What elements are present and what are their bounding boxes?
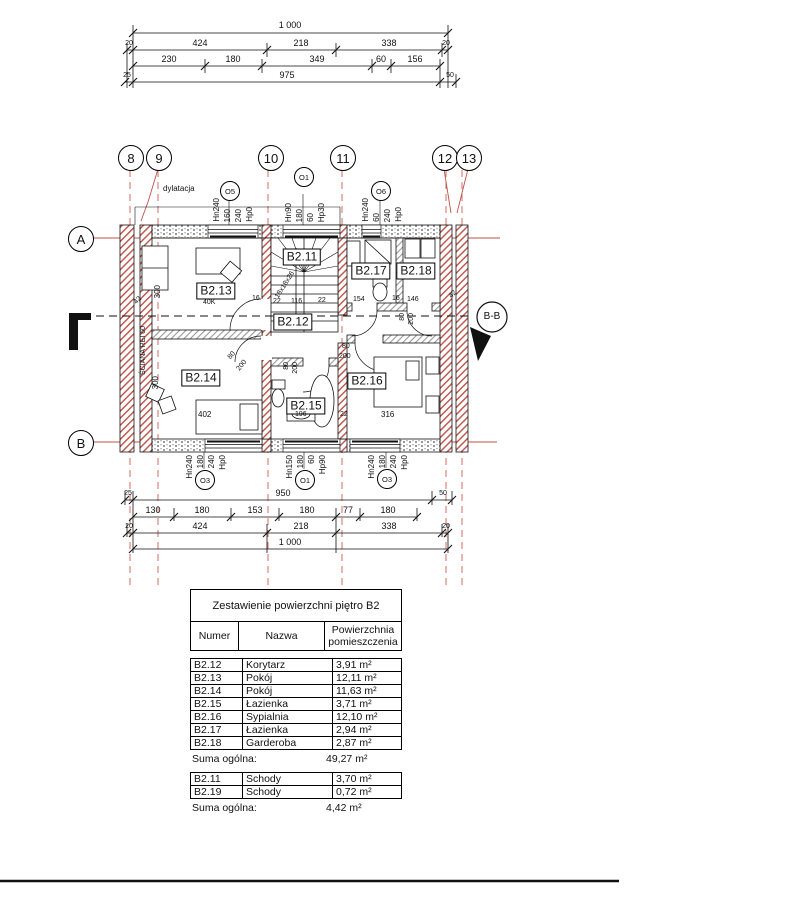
- window-label: 60: [308, 455, 316, 464]
- room-label-B2-11: B2.11: [283, 249, 321, 266]
- grid-bubble-12: 12: [432, 145, 458, 171]
- dim: 130: [145, 506, 160, 515]
- dim: 22: [340, 411, 348, 418]
- dim: 50: [446, 72, 454, 79]
- cell: 11,63 m²: [333, 685, 401, 697]
- dim: 116: [291, 298, 302, 305]
- window-label: Hn150: [286, 455, 294, 479]
- grid-bubble-9: 9: [146, 145, 172, 171]
- dim: 16: [252, 295, 260, 302]
- window-id-circle: O6: [371, 181, 391, 201]
- table-total: Suma ogólna: 49,27 m²: [190, 750, 402, 765]
- dim: 20: [125, 523, 133, 530]
- window-label: Hp0: [219, 455, 227, 470]
- room-label-B2-14: B2.14: [181, 370, 220, 387]
- dim: 22: [273, 298, 281, 305]
- cell: B2.12: [191, 659, 242, 671]
- table-row: B2.18Garderoba2,87 m²: [190, 737, 402, 750]
- window-label: 240: [235, 209, 243, 222]
- room-label-B2-17: B2.17: [351, 263, 390, 280]
- window-label: Hp90: [319, 455, 327, 474]
- cell: Schody: [242, 786, 333, 798]
- total-value: 49,27 m²: [323, 753, 402, 765]
- dim: 338: [381, 39, 396, 48]
- dim: 22: [318, 297, 326, 304]
- dim: 146: [407, 296, 419, 303]
- dim: 153: [247, 506, 262, 515]
- table-row: B2.11Schody3,70 m²: [190, 773, 402, 786]
- table-row: B2.17Łazienka2,94 m²: [190, 724, 402, 737]
- window-id-circle: O5: [220, 181, 240, 201]
- window-label: Hp30: [318, 203, 326, 222]
- cell: B2.17: [191, 724, 242, 736]
- door-size: 200: [339, 353, 351, 360]
- window-label: 180: [197, 455, 205, 468]
- dim: 156: [407, 55, 422, 64]
- dim: 180: [380, 506, 395, 515]
- cell: 2,94 m²: [333, 724, 401, 736]
- window-id-circle: O3: [377, 469, 397, 489]
- grid-bubble-10: 10: [258, 145, 284, 171]
- dylatacja-note: dylatacja: [163, 185, 195, 193]
- dim: 300: [154, 285, 162, 298]
- window-label: Hn240: [362, 198, 370, 222]
- cell: B2.19: [191, 786, 242, 798]
- window-label: 180: [297, 455, 305, 468]
- grid-bubble-11: 11: [330, 145, 356, 171]
- window-label: Hp0: [401, 455, 409, 470]
- window-label: Hn240: [213, 198, 221, 222]
- cell: Pokój: [242, 685, 333, 697]
- cell: 0,72 m²: [333, 786, 401, 798]
- cell: Pokój: [242, 672, 333, 684]
- cell: B2.13: [191, 672, 242, 684]
- dim: 180: [225, 55, 240, 64]
- cell: Łazienka: [242, 724, 333, 736]
- window-label: 160: [224, 209, 232, 222]
- col-header-powierzchnia: Powierzchnia pomieszczenia: [325, 622, 401, 650]
- cell: 3,91 m²: [333, 659, 401, 671]
- door-size: 80: [399, 313, 406, 321]
- door-size: 80: [342, 343, 350, 350]
- table-total: Suma ogólna: 4,42 m²: [190, 799, 402, 814]
- dim-total-top: 1 000: [279, 21, 302, 30]
- room-label-B2-13: B2.13: [196, 283, 235, 300]
- window-label: 180: [296, 209, 304, 222]
- grid-bubble-13: 13: [456, 145, 482, 171]
- stairs-table: B2.11Schody3,70 m² B2.19Schody0,72 m² Su…: [190, 772, 402, 814]
- room-label-B2-16: B2.16: [347, 373, 386, 390]
- cell: B2.15: [191, 698, 242, 710]
- floor-plan-sheet: 8 9 10 11 12 13 A B 1 000 20 424 218 338…: [0, 0, 801, 898]
- area-table-header: Zestawienie powierzchni piętro B2 Numer …: [190, 589, 402, 651]
- wall-note: ŚCIANA REI 60: [140, 326, 147, 375]
- cell: 2,87 m²: [333, 737, 401, 749]
- dim: 950: [275, 489, 290, 498]
- dim: 20: [125, 40, 133, 47]
- dim: 402: [198, 411, 211, 419]
- room-label-B2-18: B2.18: [396, 263, 435, 280]
- room-label-B2-12: B2.12: [273, 314, 312, 331]
- cell: 12,10 m²: [333, 711, 401, 723]
- window-label: 240: [390, 455, 398, 468]
- area-table-title: Zestawienie powierzchni piętro B2: [191, 590, 401, 621]
- window-label: 60: [373, 213, 381, 222]
- window-label: 180: [379, 455, 387, 468]
- dim: 77: [343, 506, 353, 515]
- cell: 12,11 m²: [333, 672, 401, 684]
- window-label: 240: [208, 455, 216, 468]
- dim: 180: [299, 506, 314, 515]
- window-label: Hn240: [186, 455, 194, 479]
- total-label: Suma ogólna:: [190, 802, 323, 814]
- dim: 25: [123, 72, 131, 79]
- cell: B2.18: [191, 737, 242, 749]
- cell: Garderoba: [242, 737, 333, 749]
- cell: 3,70 m²: [333, 773, 401, 785]
- window-label: 60: [307, 213, 315, 222]
- dim: 300: [152, 376, 160, 389]
- window-id-circle: O1: [294, 167, 314, 187]
- table-row: B2.19Schody0,72 m²: [190, 786, 402, 799]
- section-label: B-B: [484, 312, 501, 322]
- dim: 975: [279, 71, 294, 80]
- cell: B2.16: [191, 711, 242, 723]
- dim: 424: [192, 39, 207, 48]
- window-label: Hn90: [285, 203, 293, 222]
- dim: 154: [353, 296, 365, 303]
- col-header-numer: Numer: [191, 622, 238, 650]
- dim: 196: [295, 411, 307, 418]
- misc-note: 40K: [203, 299, 215, 306]
- dim: 349: [309, 55, 324, 64]
- dim: 20: [442, 523, 450, 530]
- dim: 230: [161, 55, 176, 64]
- dim: 20: [442, 40, 450, 47]
- window-label: Hn240: [368, 455, 376, 479]
- grid-bubble-8: 8: [118, 145, 144, 171]
- table-row: B2.12Korytarz3,91 m²: [190, 659, 402, 672]
- col-header-nazwa: Nazwa: [238, 622, 325, 650]
- window-label: Hp0: [395, 207, 403, 222]
- cell: B2.14: [191, 685, 242, 697]
- door-size: 200: [408, 313, 415, 325]
- cell: B2.11: [191, 773, 242, 785]
- dim: 16: [392, 295, 400, 302]
- window-id-circle: O1: [295, 470, 315, 490]
- dim: 218: [293, 522, 308, 531]
- dim: 338: [381, 522, 396, 531]
- grid-bubble-B: B: [68, 430, 94, 456]
- cell: Łazienka: [242, 698, 333, 710]
- dim: 60: [376, 55, 386, 64]
- window-id-circle: O3: [195, 470, 215, 490]
- area-table-body: B2.12Korytarz3,91 m² B2.13Pokój12,11 m² …: [190, 658, 402, 750]
- door-size: 80: [283, 362, 290, 370]
- dim-total-bottom: 1 000: [279, 538, 302, 547]
- dim: 218: [293, 39, 308, 48]
- table-row: B2.15Łazienka3,71 m²: [190, 698, 402, 711]
- table-row: B2.13Pokój12,11 m²: [190, 672, 402, 685]
- cell: Schody: [242, 773, 333, 785]
- total-value: 4,42 m²: [323, 802, 402, 814]
- dim: 50: [439, 490, 447, 497]
- dim: 316: [381, 411, 394, 419]
- window-label: Hp0: [246, 207, 254, 222]
- dim: 25: [124, 490, 132, 497]
- dim: 424: [192, 522, 207, 531]
- cell: Sypialnia: [242, 711, 333, 723]
- door-size: 200: [292, 362, 299, 374]
- table-row: B2.14Pokój11,63 m²: [190, 685, 402, 698]
- cell: Korytarz: [242, 659, 333, 671]
- cell: 3,71 m²: [333, 698, 401, 710]
- total-label: Suma ogólna:: [190, 753, 323, 765]
- window-label: 240: [384, 209, 392, 222]
- stairs-table-body: B2.11Schody3,70 m² B2.19Schody0,72 m²: [190, 772, 402, 799]
- area-table: Zestawienie powierzchni piętro B2 Numer …: [190, 589, 402, 765]
- dim: 180: [194, 506, 209, 515]
- grid-bubble-A: A: [68, 226, 94, 252]
- table-row: B2.16Sypialnia12,10 m²: [190, 711, 402, 724]
